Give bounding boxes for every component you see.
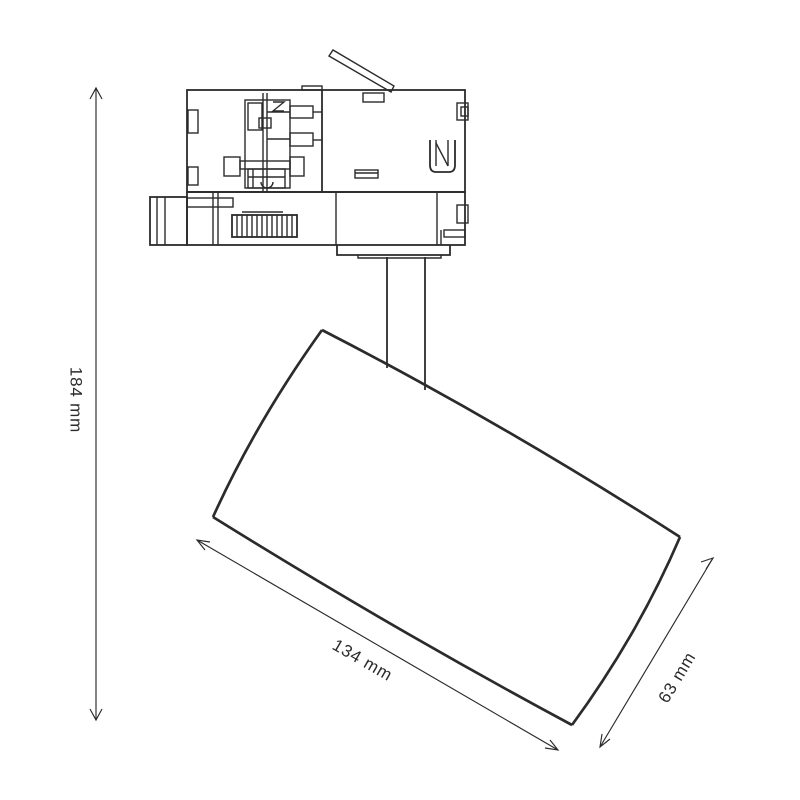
lamp-back-edge	[213, 330, 322, 517]
length-dimension-line	[197, 540, 558, 750]
technical-drawing: 184 mm	[0, 0, 800, 800]
left-tab-lower	[188, 167, 198, 185]
stem	[387, 257, 425, 390]
lamp-top-edge	[322, 330, 680, 537]
lever-base	[363, 93, 384, 102]
adapter-lower-body	[187, 192, 465, 245]
track-adapter	[150, 50, 468, 258]
release-lever	[329, 50, 394, 92]
right-tab-upper	[457, 103, 468, 120]
mounting-clip	[430, 140, 455, 172]
bottom-flange	[337, 245, 450, 255]
contact-assembly	[224, 93, 322, 192]
lamp-bottom-edge	[213, 517, 572, 725]
right-tab-lower	[457, 205, 468, 223]
slot	[355, 170, 378, 178]
knurled-adjuster	[232, 212, 297, 237]
power-feed-box	[150, 197, 233, 245]
arrow-upright-icon	[701, 558, 713, 569]
drawing-canvas: 184 mm	[0, 0, 800, 800]
lamp-head	[213, 330, 680, 725]
height-label: 184 mm	[67, 367, 86, 433]
length-label: 134 mm	[329, 635, 396, 685]
adapter-top-notch	[302, 86, 322, 90]
length-dimension: 134 mm	[197, 540, 558, 750]
left-tab-upper	[188, 110, 198, 133]
lower-right-box	[444, 230, 465, 237]
height-dimension: 184 mm	[67, 88, 102, 720]
diameter-label: 63 mm	[655, 649, 700, 707]
